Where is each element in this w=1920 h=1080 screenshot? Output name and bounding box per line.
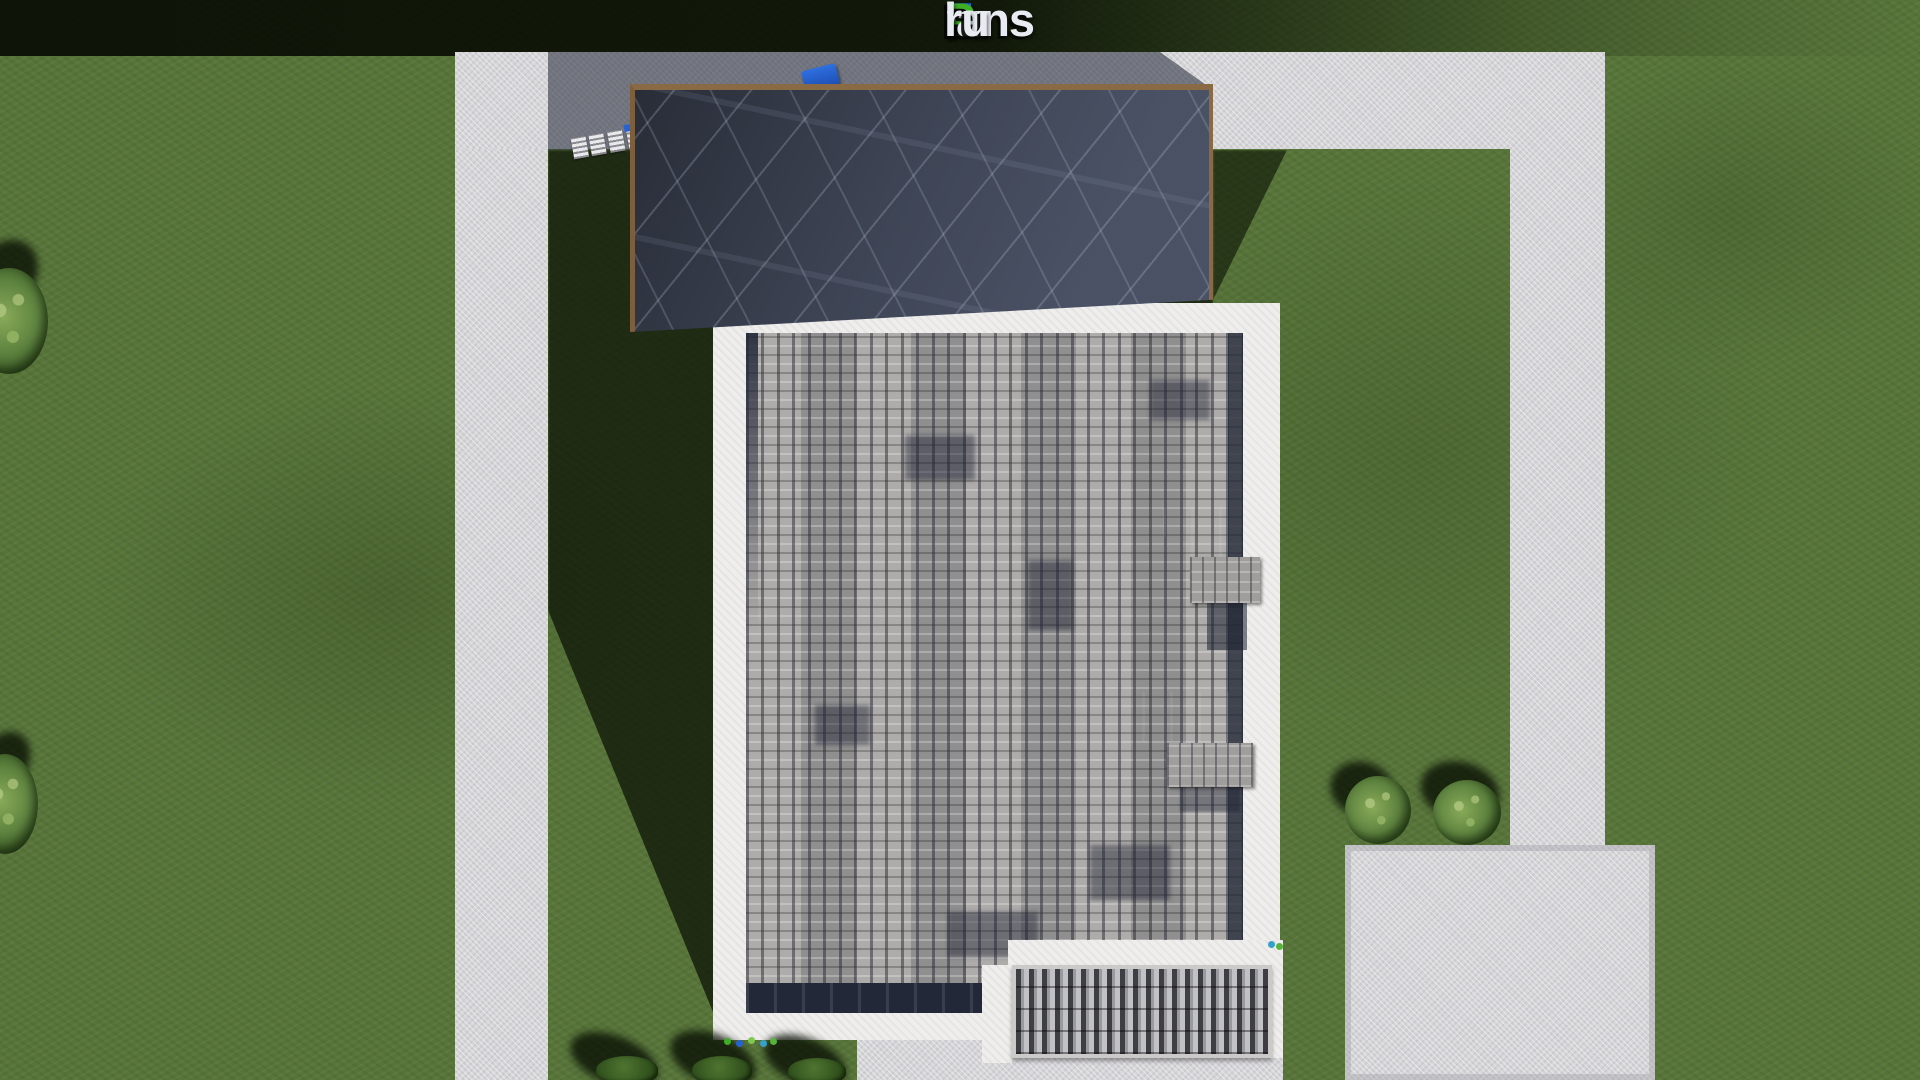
garage-roof [630, 84, 1213, 332]
parapet-left [713, 303, 746, 1040]
tree [1345, 776, 1411, 844]
driveway-pad-right [1345, 845, 1655, 1080]
vent-box-upper [1190, 557, 1260, 603]
logo-letter-group: ru [944, 0, 989, 46]
roof-stain [815, 705, 870, 745]
skylight-lower [1142, 692, 1238, 742]
vent-shadow-upper [1207, 603, 1247, 650]
walkway-right [1510, 52, 1605, 847]
plant-speck [760, 1040, 767, 1047]
vent-shadow-lower [1180, 787, 1240, 812]
plant-speck [748, 1037, 755, 1044]
plant-speck [1268, 941, 1275, 948]
plant-speck [724, 1038, 731, 1045]
walkway-left [455, 52, 548, 1080]
roof-stain [1090, 845, 1170, 900]
roof-edge-shadow-bottom [746, 983, 1012, 1013]
shingle-roof [746, 333, 1243, 1013]
roof-edge-shadow-left [746, 333, 758, 633]
plant-speck [736, 1040, 743, 1047]
plant-speck [770, 1038, 777, 1045]
vent-box-lower [1167, 743, 1253, 787]
terrace-slat-canopy [1012, 965, 1272, 1058]
bush [596, 1056, 658, 1080]
site-plan-render: FixPlans.ru [0, 0, 1920, 1080]
parapet-bottom [713, 1012, 1013, 1040]
tree [1433, 780, 1501, 845]
parapet-step [982, 965, 1012, 1063]
roof-stain [1028, 560, 1073, 630]
roof-stain [1150, 380, 1210, 420]
plant-speck [1276, 943, 1283, 950]
bush [692, 1056, 752, 1080]
bush [788, 1058, 846, 1080]
roof-stain [905, 435, 975, 480]
parapet-right [1243, 303, 1280, 965]
